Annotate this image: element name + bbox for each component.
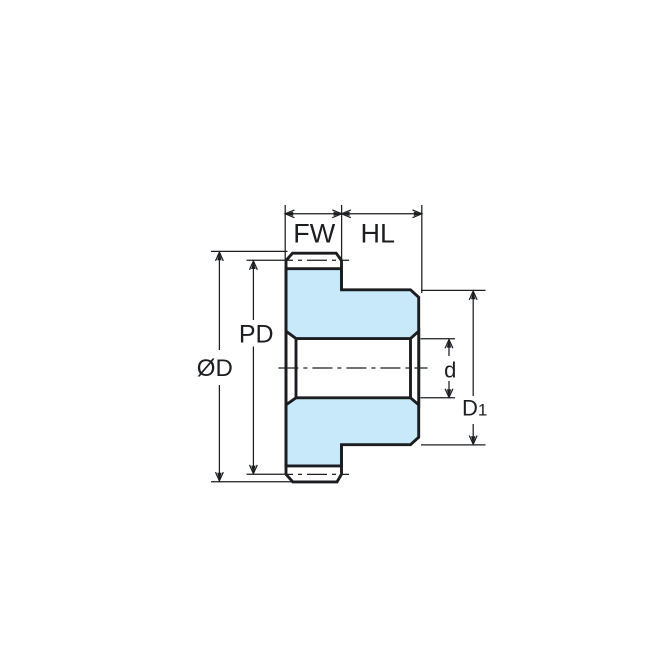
svg-text:PD: PD <box>239 321 274 349</box>
svg-text:d: d <box>444 358 456 383</box>
svg-text:ØD: ØD <box>197 355 233 382</box>
svg-text:FW: FW <box>293 219 335 249</box>
svg-text:HL: HL <box>361 219 396 249</box>
